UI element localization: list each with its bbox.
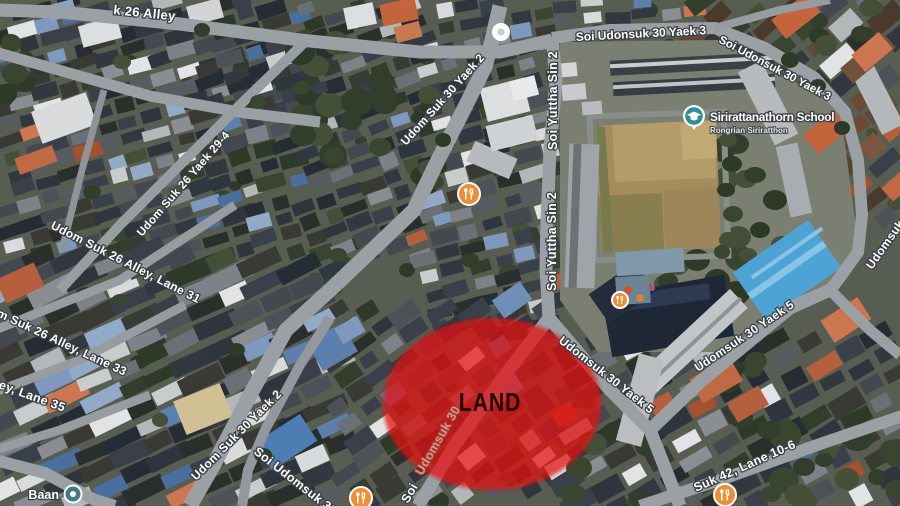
svg-text:LAND: LAND [459, 388, 521, 418]
svg-text:Sirirattanathorn School: Sirirattanathorn School [710, 110, 834, 124]
svg-text:Rongrian Siriratthon: Rongrian Siriratthon [710, 126, 788, 135]
svg-text:Soi Yuttha Sin 2: Soi Yuttha Sin 2 [546, 51, 560, 150]
svg-text:Soi Yuttha Sin 2: Soi Yuttha Sin 2 [545, 192, 559, 291]
svg-text:Baan: Baan [28, 488, 59, 502]
